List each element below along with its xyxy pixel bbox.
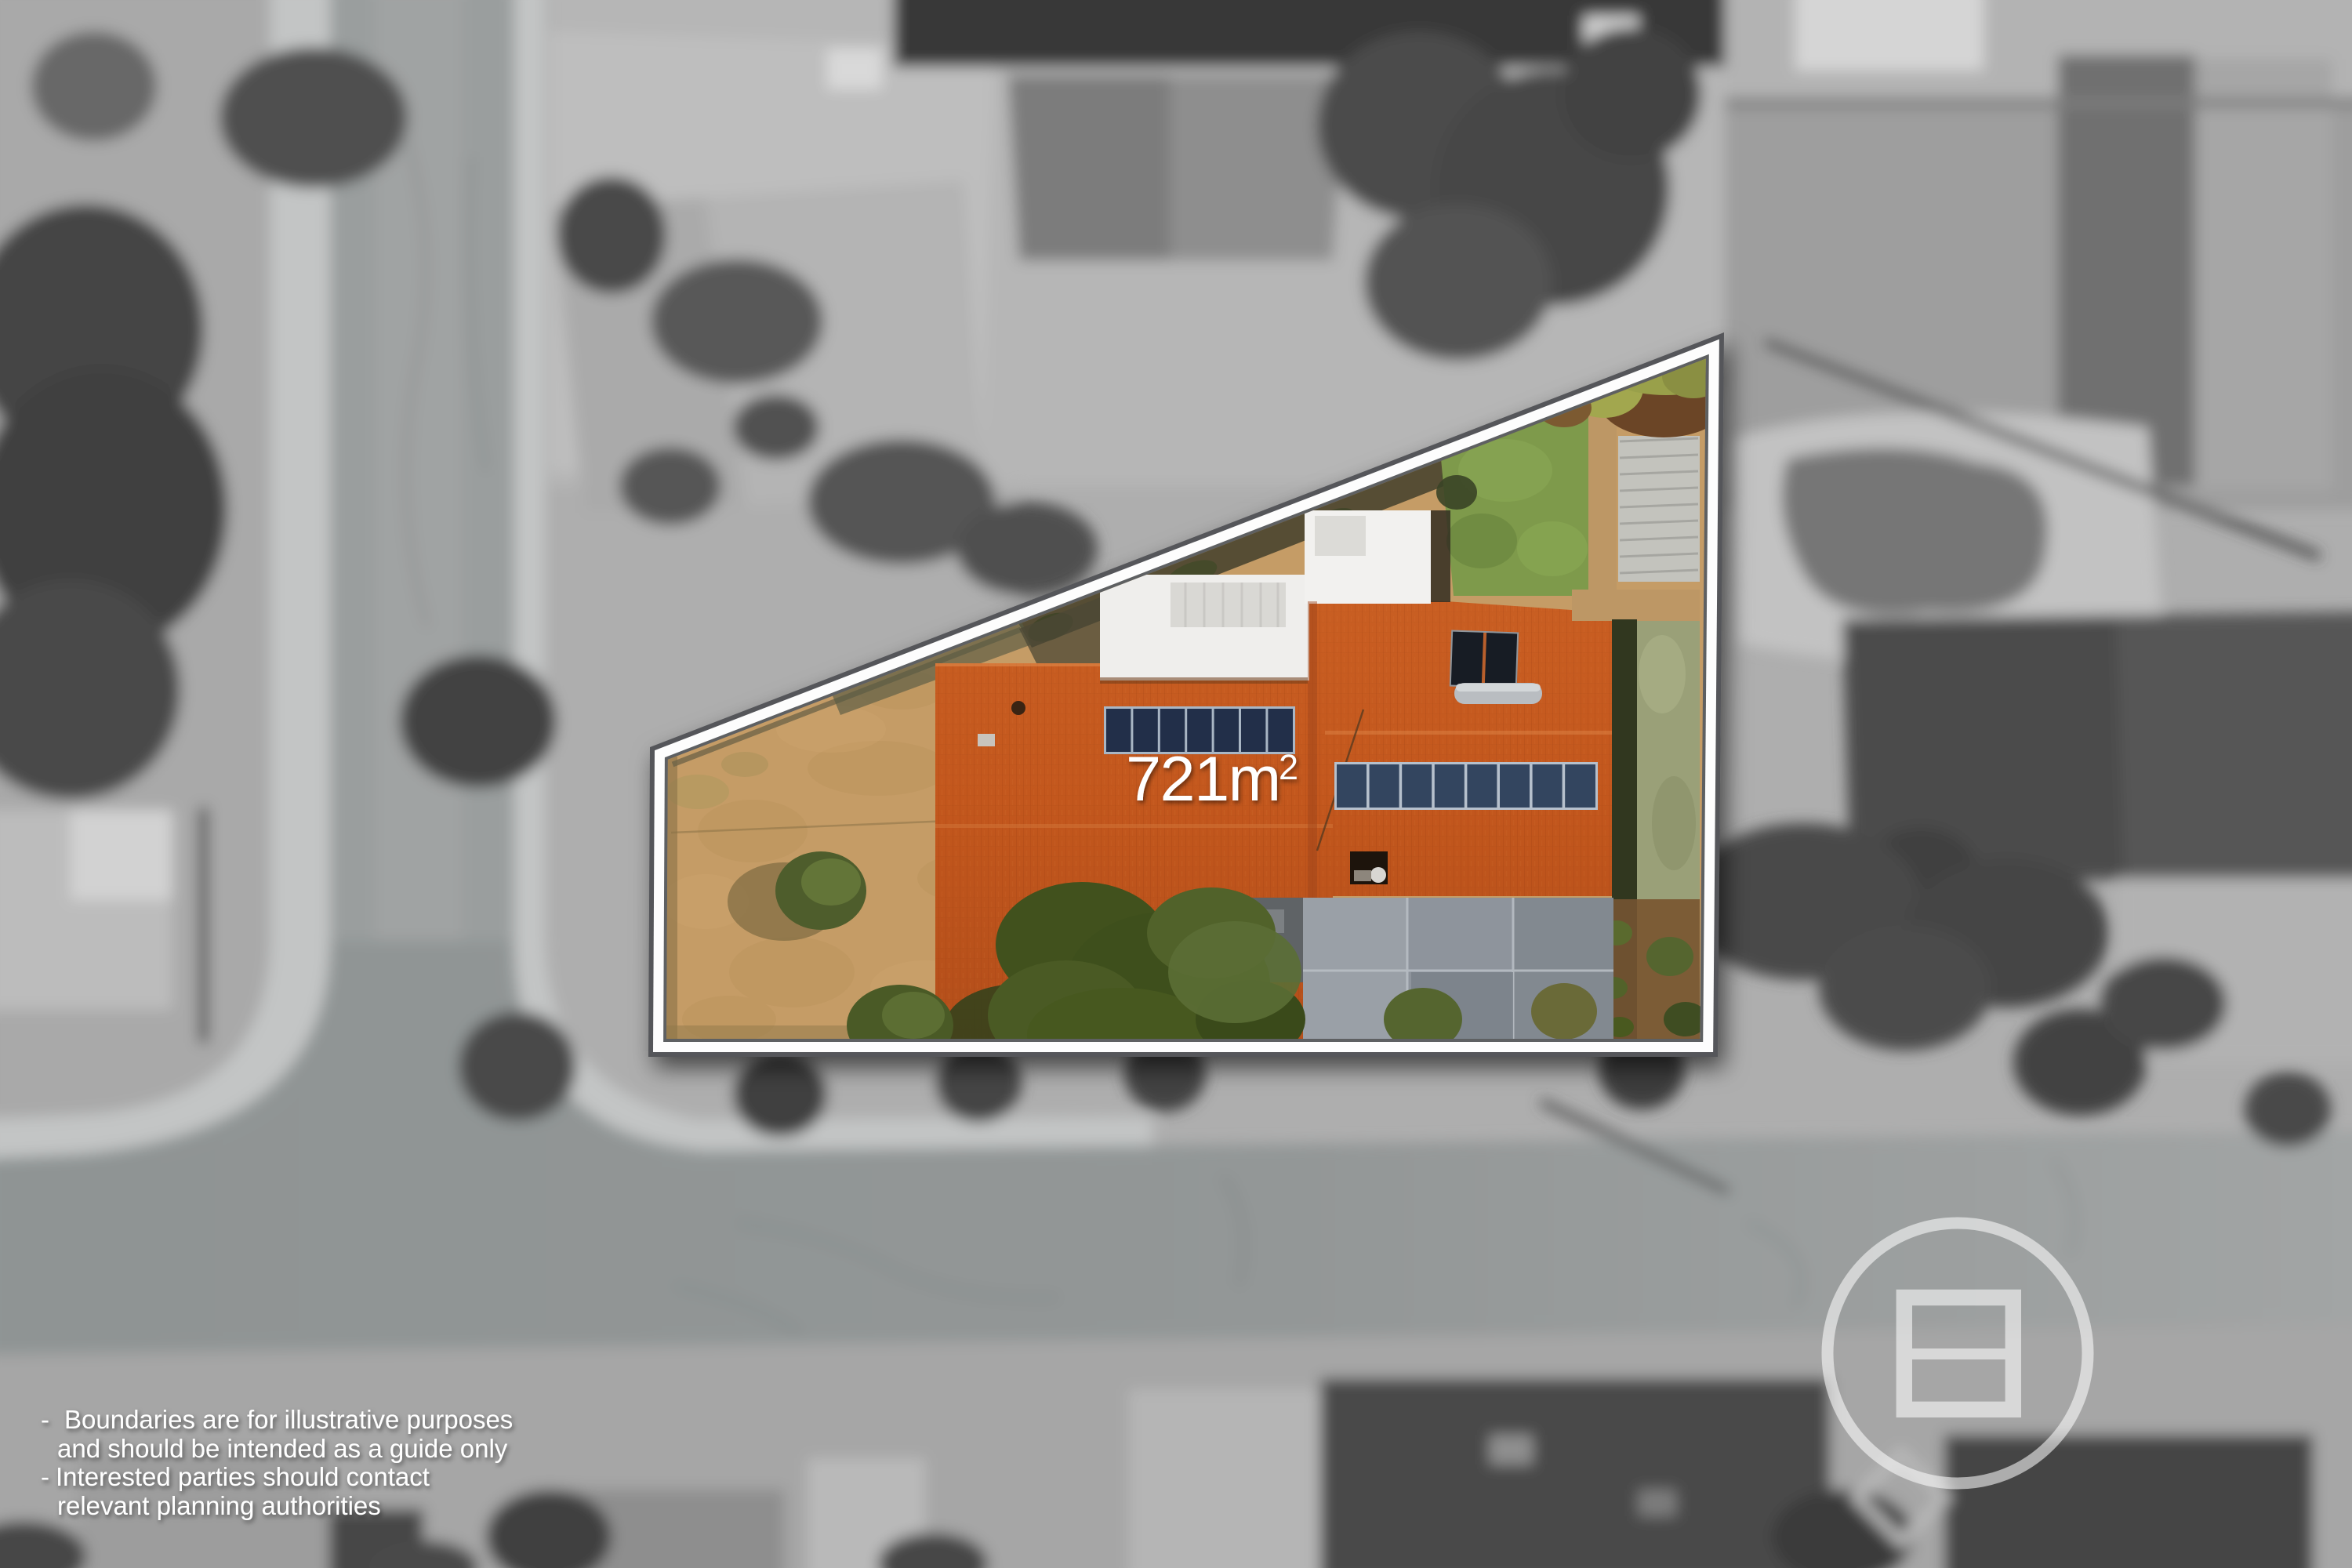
svg-text:Boundaries are for illustrativ: Boundaries are for illustrative purposes bbox=[64, 1405, 513, 1434]
svg-text:relevant planning authorities: relevant planning authorities bbox=[57, 1491, 381, 1520]
svg-text:-: - bbox=[41, 1462, 49, 1491]
svg-text:721m: 721m bbox=[1126, 744, 1280, 815]
svg-text:Interested parties should cont: Interested parties should contact bbox=[56, 1462, 430, 1491]
svg-text:-: - bbox=[41, 1405, 49, 1434]
svg-text:2: 2 bbox=[1279, 747, 1298, 787]
svg-text:and should be intended as a gu: and should be intended as a guide only bbox=[57, 1434, 508, 1463]
